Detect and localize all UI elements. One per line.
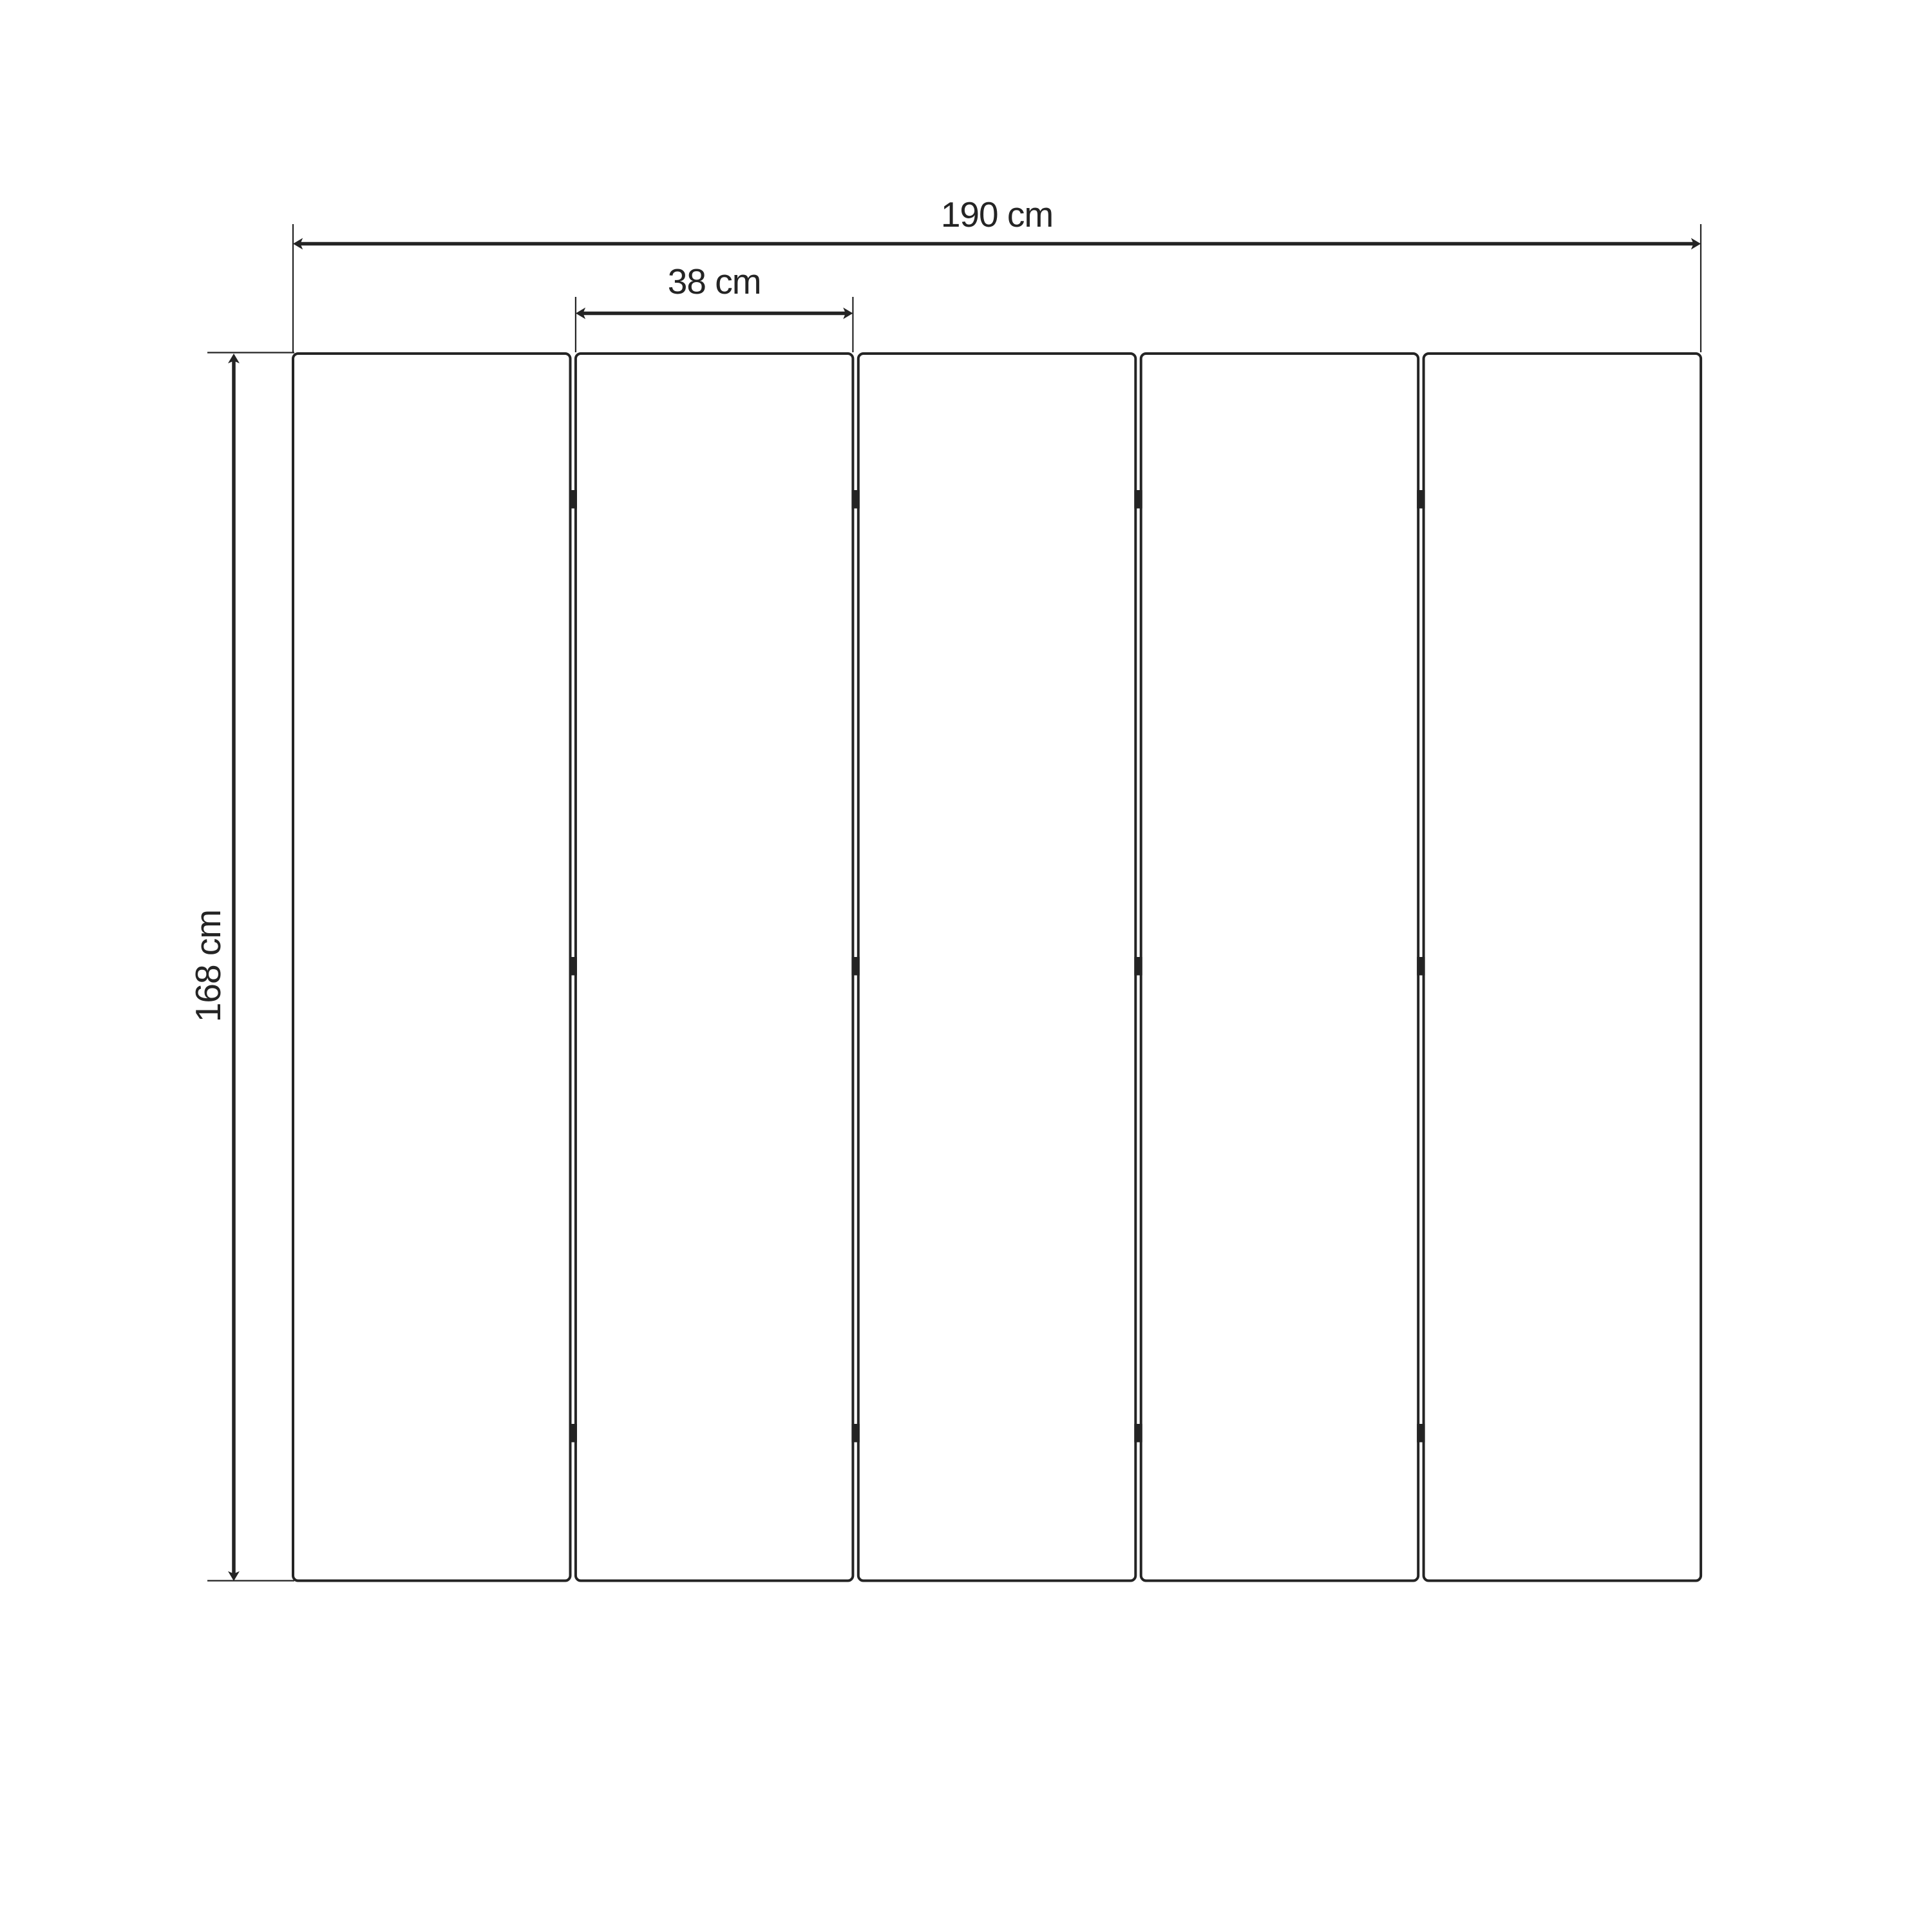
svg-text:190 cm: 190 cm [941,194,1053,234]
svg-text:38 cm: 38 cm [668,261,761,301]
svg-text:168 cm: 168 cm [188,910,228,1022]
